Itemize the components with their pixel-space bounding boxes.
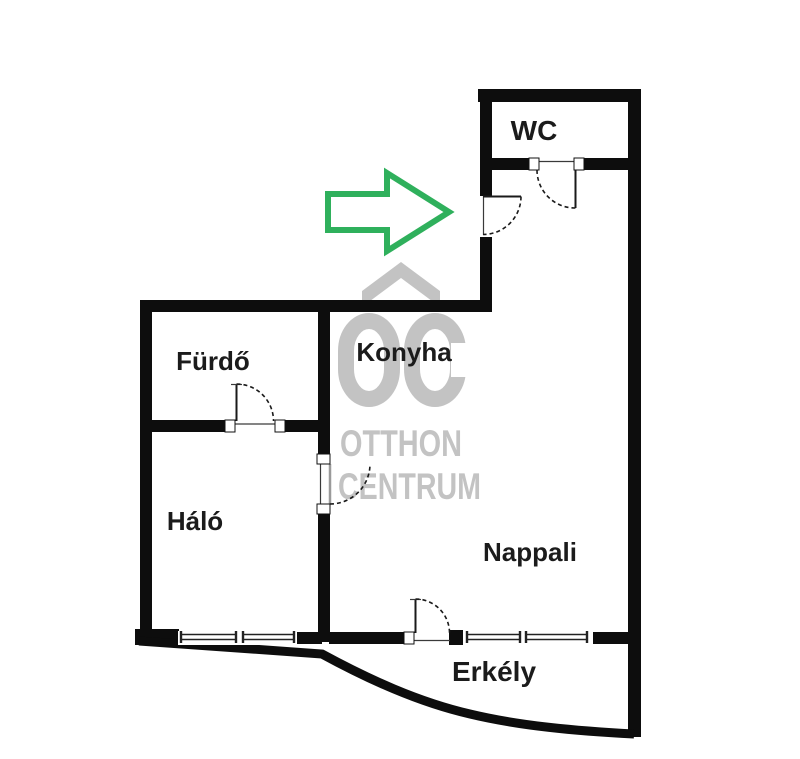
wall-furdo-bottom-left: [140, 420, 226, 432]
door-erkely: [404, 599, 450, 644]
wall-wc-left: [480, 89, 492, 170]
wall-bottom-nappali-left: [329, 632, 405, 644]
logo-line2: CENTRUM: [338, 466, 481, 507]
door-wc: [529, 158, 584, 208]
room-label-halo: Háló: [167, 506, 223, 536]
wall-hall-left-upper: [480, 168, 492, 196]
wall-outer-left: [140, 300, 152, 644]
wall-konyha-top: [140, 300, 492, 312]
wall-wc-top: [478, 89, 640, 102]
entrance-arrow-icon: [328, 173, 449, 251]
logo-line1: OTTHON: [340, 423, 462, 464]
wall-bottom-halo: [297, 632, 322, 644]
room-label-erkely: Erkély: [452, 656, 536, 687]
wall-wc-bottom-right: [583, 158, 638, 170]
floorplan-page: OTTHON CENTRUM: [0, 0, 800, 759]
watermark-logo: OTTHON CENTRUM: [338, 262, 481, 507]
window-nappali: [464, 631, 591, 645]
window-halo: [178, 631, 296, 645]
room-label-furdo: Fürdő: [176, 346, 250, 376]
doors: [225, 158, 584, 644]
floorplan-drawing: OTTHON CENTRUM: [0, 0, 800, 759]
door-entrance: [483, 196, 521, 235]
door-furdo: [225, 384, 285, 432]
room-label-wc: WC: [511, 115, 558, 146]
wall-bottom-nappali-right: [593, 632, 641, 644]
wall-furdo-bottom-right: [284, 420, 330, 432]
room-label-konyha: Konyha: [356, 337, 452, 367]
wall-balcony-curve: [139, 641, 634, 734]
room-label-nappali: Nappali: [483, 537, 577, 567]
wall-bottom-door-jamb: [449, 630, 463, 645]
